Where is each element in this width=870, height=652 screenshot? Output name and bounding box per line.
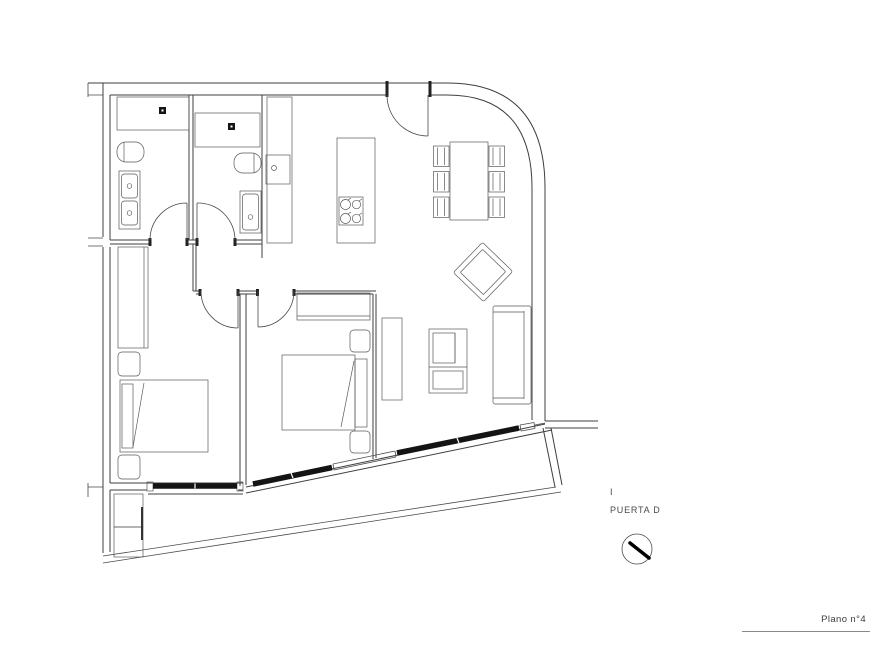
sideboard <box>382 318 402 400</box>
annotations: I PUERTA D <box>610 487 661 564</box>
door-swings <box>150 95 428 328</box>
interior-walls <box>110 95 376 486</box>
planter-box <box>114 494 143 557</box>
exterior-walls <box>88 81 598 553</box>
sink-icon <box>240 191 261 233</box>
dining-area <box>434 142 505 220</box>
armchair <box>453 242 512 301</box>
kitchen <box>266 97 375 243</box>
shower-tray-icon <box>117 97 189 130</box>
living-area <box>382 242 531 404</box>
wardrobe <box>118 247 148 348</box>
titleblock: Plano n°4 <box>742 614 870 632</box>
plan-number: Plano n°4 <box>821 614 866 625</box>
terrace <box>103 487 561 563</box>
dining-chairs <box>434 146 505 218</box>
glazing-sliders <box>147 423 545 492</box>
kitchen-cabinet-column <box>267 97 292 243</box>
bathroom-2 <box>195 113 261 233</box>
wardrobe <box>297 293 370 320</box>
door-marker-label: I <box>610 487 613 497</box>
terrace-parapet <box>103 487 561 563</box>
bed <box>120 380 208 452</box>
bathroom-1 <box>117 97 189 229</box>
nightstand <box>118 352 140 376</box>
floorplan-sheet: I PUERTA D Plano n°4 <box>0 0 870 652</box>
bed <box>282 355 367 430</box>
floorplan-drawing: I PUERTA D Plano n°4 <box>0 0 870 652</box>
nightstand <box>118 455 140 479</box>
dining-table <box>450 142 488 220</box>
shower-tray-icon <box>195 113 260 147</box>
kitchen-sink-icon <box>266 155 290 184</box>
toilet-icon <box>117 142 144 162</box>
bedroom-1 <box>118 247 208 479</box>
toilet-icon <box>234 153 261 173</box>
kitchen-island <box>337 138 375 243</box>
door-label: PUERTA D <box>610 505 661 515</box>
nightstand <box>350 431 370 453</box>
sofa <box>493 306 531 404</box>
cooktop-icon <box>339 197 363 225</box>
coffee-table-unit <box>429 329 467 393</box>
bedroom-2 <box>282 293 370 453</box>
nightstand <box>350 330 370 352</box>
double-sink-icon <box>119 171 140 229</box>
north-indicator-icon <box>622 534 652 564</box>
